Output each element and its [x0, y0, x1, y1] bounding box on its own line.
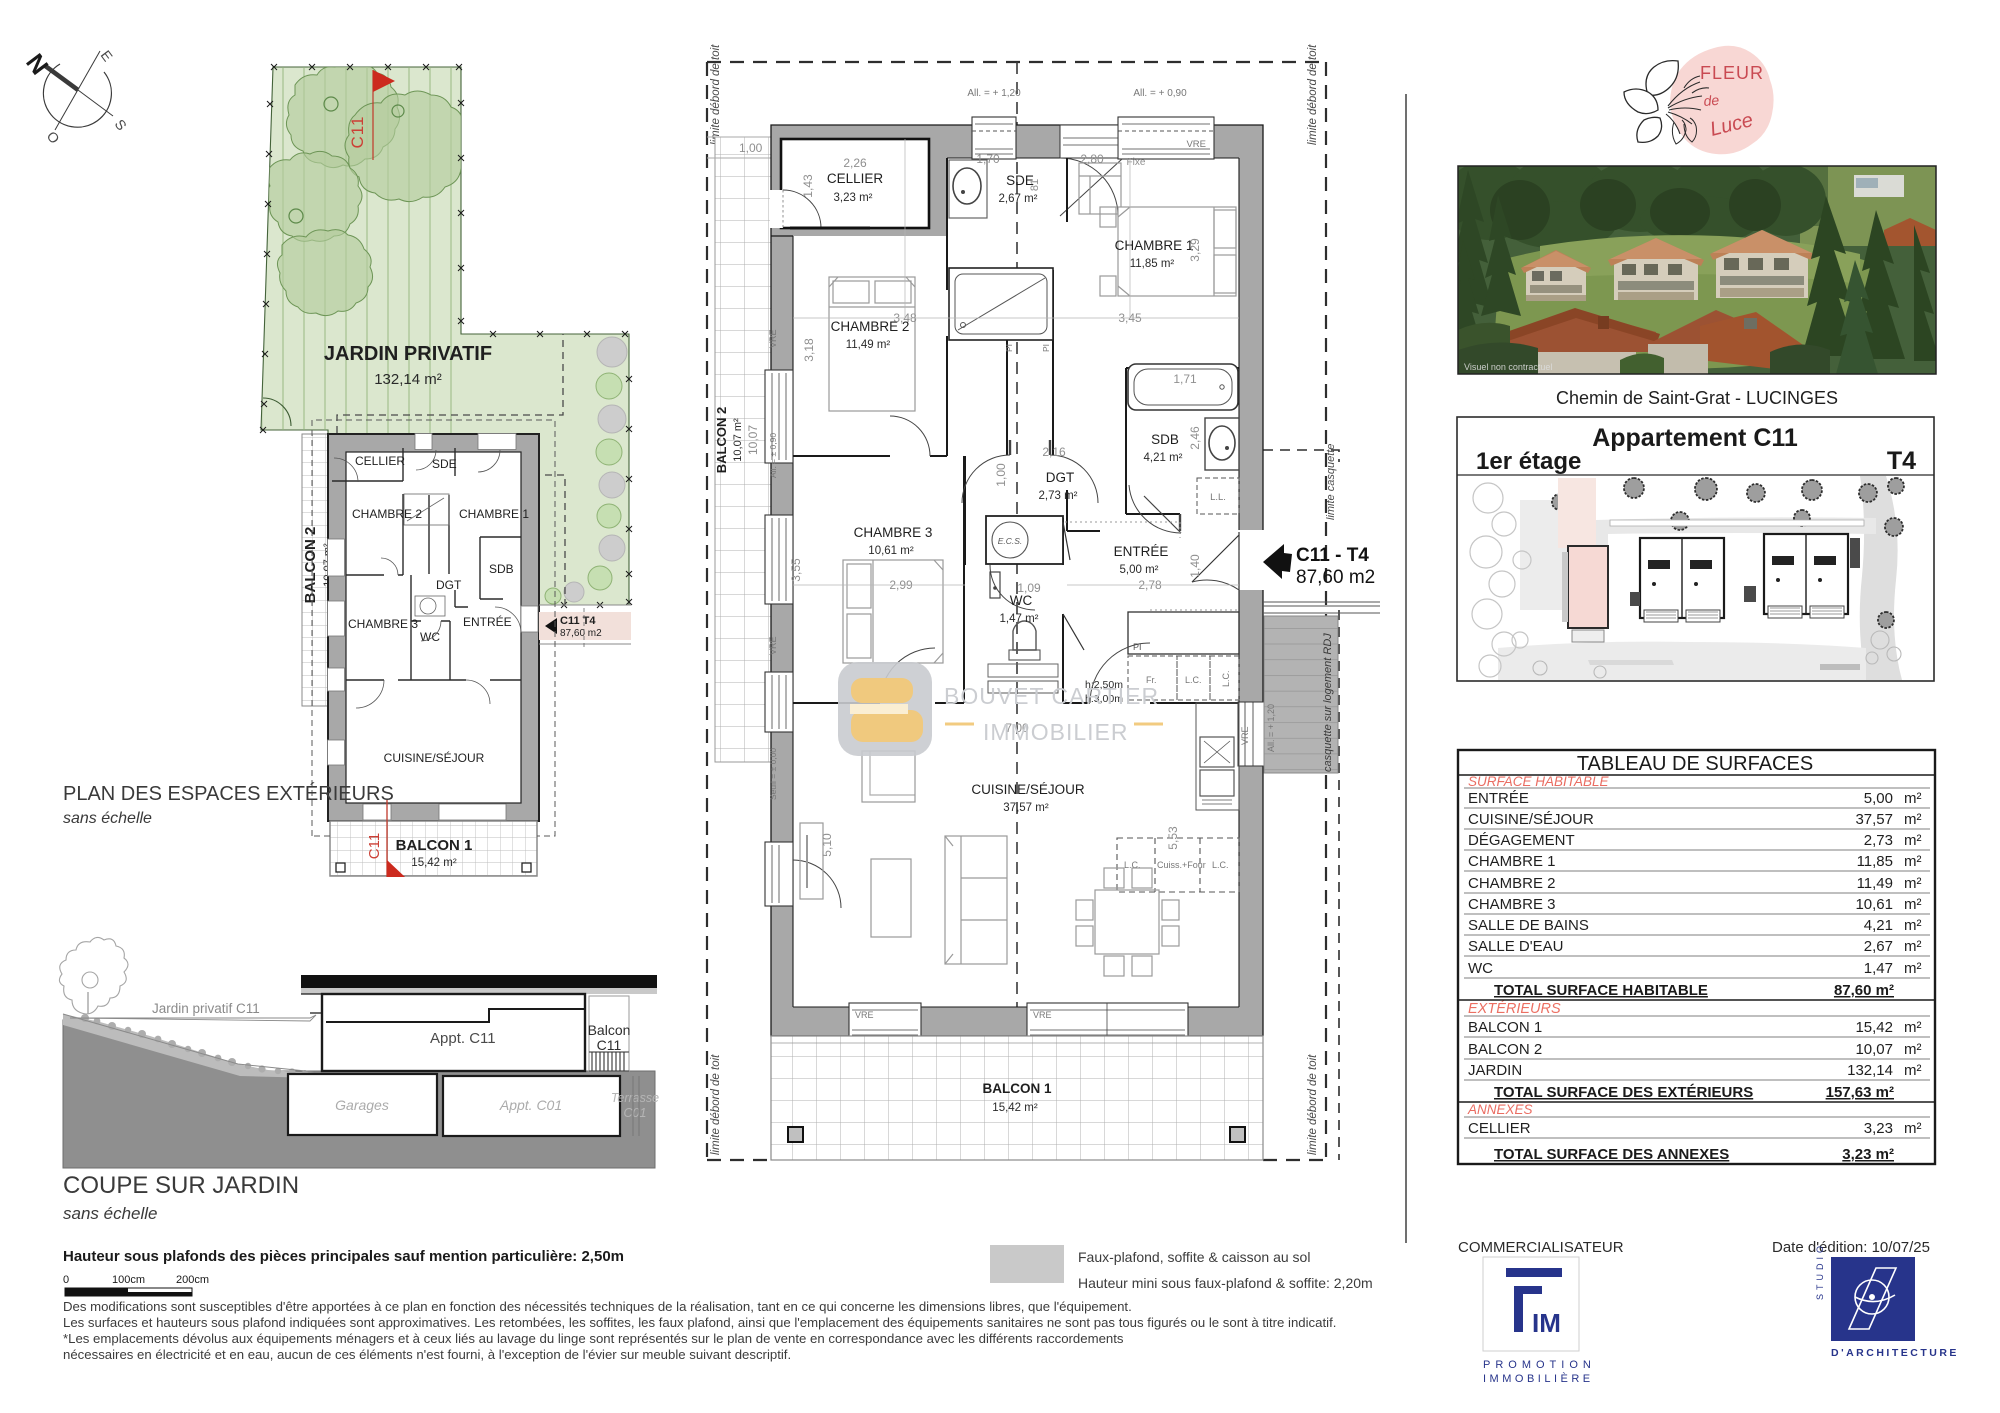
- svg-text:DÉGAGEMENT: DÉGAGEMENT: [1468, 832, 1575, 849]
- svg-text:CHAMBRE 1: CHAMBRE 1: [1115, 238, 1194, 253]
- svg-text:15,42: 15,42: [1855, 1019, 1893, 1036]
- svg-text:*Les emplacements dévolus aux: *Les emplacements dévolus aux équipement…: [63, 1331, 1124, 1346]
- svg-text:Des modifications sont suscept: Des modifications sont susceptibles d'êt…: [63, 1299, 1132, 1314]
- svg-text:ENTRÉE: ENTRÉE: [1114, 544, 1169, 559]
- svg-text:4,21 m²: 4,21 m²: [1144, 452, 1183, 464]
- svg-text:1,40: 1,40: [1188, 554, 1202, 578]
- svg-text:VRE: VRE: [1240, 726, 1250, 745]
- svg-text:m²: m²: [1904, 960, 1922, 977]
- svg-text:limite débord de toit: limite débord de toit: [1307, 44, 1319, 145]
- svg-text:CHAMBRE 3: CHAMBRE 3: [854, 525, 933, 540]
- svg-text:COMMERCIALISATEUR: COMMERCIALISATEUR: [1458, 1239, 1624, 1256]
- svg-text:SDB: SDB: [1151, 432, 1179, 447]
- svg-text:limite débord de toit: limite débord de toit: [710, 44, 722, 145]
- svg-text:PI: PI: [1041, 344, 1051, 352]
- svg-text:VRE: VRE: [768, 329, 778, 348]
- svg-text:m²: m²: [1904, 1019, 1922, 1036]
- svg-text:TABLEAU DE SURFACES: TABLEAU DE SURFACES: [1577, 753, 1813, 775]
- svg-text:100cm: 100cm: [112, 1274, 145, 1286]
- svg-text:VRE: VRE: [768, 636, 778, 655]
- svg-text:IMMOBILIÈRE: IMMOBILIÈRE: [1483, 1372, 1594, 1385]
- svg-text:10,07: 10,07: [1855, 1041, 1893, 1058]
- svg-text:All. = ± 0,90: All. = ± 0,90: [768, 433, 778, 478]
- svg-text:VRE: VRE: [1186, 139, 1206, 150]
- svg-text:m²: m²: [1904, 853, 1922, 870]
- svg-text:5,10: 5,10: [820, 833, 834, 857]
- svg-text:L.C.: L.C.: [1212, 860, 1229, 870]
- svg-text:5,00: 5,00: [1864, 790, 1893, 807]
- svg-text:3,29: 3,29: [1188, 238, 1202, 262]
- svg-text:11,49 m²: 11,49 m²: [846, 339, 891, 351]
- svg-text:Appt. C01: Appt. C01: [499, 1097, 562, 1113]
- svg-text:BALCON 2: BALCON 2: [302, 527, 319, 604]
- svg-text:11,85 m²: 11,85 m²: [1130, 258, 1175, 270]
- svg-text:0: 0: [63, 1274, 69, 1286]
- svg-text:SURFACE HABITABLE: SURFACE HABITABLE: [1468, 774, 1610, 789]
- svg-text:CELLIER: CELLIER: [827, 171, 884, 186]
- svg-text:1,43: 1,43: [801, 174, 815, 198]
- svg-text:Jardin privatif C11: Jardin privatif C11: [152, 1001, 260, 1016]
- svg-text:m²: m²: [1904, 811, 1922, 828]
- svg-text:Hauteur sous plafonds des pièc: Hauteur sous plafonds des pièces princip…: [63, 1248, 624, 1265]
- svg-text:200cm: 200cm: [176, 1274, 209, 1286]
- svg-text:81: 81: [1029, 179, 1041, 191]
- svg-text:TOTAL SURFACE HABITABLE: TOTAL SURFACE HABITABLE: [1494, 982, 1708, 999]
- svg-text:4,21: 4,21: [1864, 917, 1893, 934]
- svg-text:5,53: 5,53: [1166, 826, 1180, 850]
- svg-text:10,61: 10,61: [1855, 896, 1893, 913]
- svg-text:CUISINE/SÉJOUR: CUISINE/SÉJOUR: [1468, 811, 1594, 828]
- svg-text:Visuel non contractuel: Visuel non contractuel: [1464, 362, 1552, 372]
- svg-text:D'ARCHITECTURE: D'ARCHITECTURE: [1831, 1347, 1959, 1359]
- svg-text:All. = + 0,90: All. = + 0,90: [1133, 88, 1187, 99]
- svg-text:BOUVET CARTIER: BOUVET CARTIER: [944, 683, 1159, 709]
- svg-text:2,26: 2,26: [843, 156, 867, 170]
- svg-text:Chemin de Saint-Grat - LUCINGE: Chemin de Saint-Grat - LUCINGES: [1556, 388, 1838, 408]
- svg-text:C11: C11: [597, 1037, 622, 1053]
- svg-text:Les surfaces et hauteurs sous: Les surfaces et hauteurs sous plafond in…: [63, 1315, 1336, 1330]
- svg-text:Fixe: Fixe: [1127, 157, 1146, 168]
- svg-text:1er étage: 1er étage: [1476, 448, 1581, 475]
- svg-text:m²: m²: [1904, 1062, 1922, 1079]
- svg-text:VRE: VRE: [1033, 1010, 1052, 1020]
- svg-text:CHAMBRE 3: CHAMBRE 3: [1468, 896, 1556, 913]
- svg-text:3,18: 3,18: [802, 338, 816, 362]
- svg-text:CHAMBRE 1: CHAMBRE 1: [459, 507, 529, 521]
- svg-text:m²: m²: [1904, 832, 1922, 849]
- svg-text:87,60 m²: 87,60 m²: [1834, 982, 1894, 999]
- svg-text:ENTRÉE: ENTRÉE: [1468, 790, 1529, 807]
- svg-text:37,57 m²: 37,57 m²: [1003, 802, 1049, 814]
- svg-text:BALCON 2: BALCON 2: [1468, 1041, 1542, 1058]
- svg-text:132,14: 132,14: [1847, 1062, 1893, 1079]
- svg-text:limite débord de toit: limite débord de toit: [1307, 1054, 1319, 1155]
- svg-text:1,71: 1,71: [1173, 372, 1197, 386]
- svg-text:EXTÉRIEURS: EXTÉRIEURS: [1468, 1000, 1561, 1017]
- svg-text:VRE: VRE: [855, 1010, 874, 1020]
- svg-text:Appartement C11: Appartement C11: [1592, 424, 1798, 452]
- svg-text:10,07 m²: 10,07 m²: [732, 418, 744, 462]
- svg-text:PLAN DES ESPACES EXTÉRIEURS: PLAN DES ESPACES EXTÉRIEURS: [63, 782, 394, 805]
- svg-text:de: de: [1703, 92, 1720, 109]
- svg-text:sans échelle: sans échelle: [63, 810, 152, 827]
- svg-text:2,80: 2,80: [1080, 152, 1104, 166]
- svg-text:Garages: Garages: [335, 1097, 389, 1113]
- svg-text:C11 T4: C11 T4: [560, 615, 596, 627]
- svg-text:nécessaires en électricité et: nécessaires en électricité et en eau, au…: [63, 1347, 791, 1362]
- svg-text:CHAMBRE 2: CHAMBRE 2: [1468, 875, 1556, 892]
- svg-text:C11: C11: [366, 833, 383, 859]
- svg-text:15,42 m²: 15,42 m²: [992, 1102, 1038, 1114]
- svg-text:C11: C11: [348, 116, 367, 149]
- svg-text:3,55: 3,55: [789, 558, 803, 582]
- svg-text:BALCON 1: BALCON 1: [982, 1081, 1051, 1096]
- svg-text:m²: m²: [1904, 790, 1922, 807]
- svg-text:L.L.: L.L.: [1210, 492, 1226, 503]
- svg-text:2,16: 2,16: [1042, 445, 1066, 459]
- svg-text:3,23 m²: 3,23 m²: [1842, 1146, 1894, 1163]
- svg-text:m²: m²: [1904, 938, 1922, 955]
- svg-text:FLEUR: FLEUR: [1700, 63, 1764, 83]
- svg-text:All. = + 1,20: All. = + 1,20: [967, 88, 1021, 99]
- svg-text:BALCON 1: BALCON 1: [1468, 1019, 1542, 1036]
- svg-text:L.C.: L.C.: [1221, 670, 1231, 687]
- svg-text:BALCON 1: BALCON 1: [396, 837, 473, 854]
- svg-text:10,07: 10,07: [746, 425, 760, 455]
- svg-text:2,73 m²: 2,73 m²: [1039, 490, 1078, 502]
- svg-text:JARDIN PRIVATIF: JARDIN PRIVATIF: [324, 343, 492, 365]
- svg-text:C01: C01: [624, 1106, 647, 1120]
- svg-text:JARDIN: JARDIN: [1468, 1062, 1522, 1079]
- svg-text:SALLE D'EAU: SALLE D'EAU: [1468, 938, 1563, 955]
- svg-text:Seuil = ± 0,00: Seuil = ± 0,00: [768, 748, 778, 800]
- svg-text:Balcon: Balcon: [588, 1022, 631, 1038]
- svg-text:TOTAL SURFACE DES ANNEXES: TOTAL SURFACE DES ANNEXES: [1494, 1146, 1729, 1163]
- svg-text:1,70: 1,70: [976, 152, 1000, 166]
- svg-text:3,23 m²: 3,23 m²: [834, 192, 873, 204]
- svg-text:87,60 m2: 87,60 m2: [1296, 567, 1375, 588]
- svg-text:Hauteur mini sous faux-plafond: Hauteur mini sous faux-plafond & soffite…: [1078, 1275, 1373, 1291]
- svg-text:2,67 m²: 2,67 m²: [999, 193, 1038, 205]
- svg-text:Date d'édition: 10/07/25: Date d'édition: 10/07/25: [1772, 1239, 1930, 1256]
- svg-text:casquette sur logement RDJ: casquette sur logement RDJ: [1322, 633, 1334, 772]
- svg-text:37,57: 37,57: [1855, 811, 1893, 828]
- svg-text:CELLIER: CELLIER: [355, 454, 405, 468]
- svg-text:2,67: 2,67: [1864, 938, 1893, 955]
- svg-text:IMMOBILIER: IMMOBILIER: [983, 719, 1128, 745]
- svg-text:Appt. C11: Appt. C11: [430, 1030, 496, 1047]
- svg-text:PROMOTION: PROMOTION: [1483, 1359, 1596, 1371]
- svg-text:CELLIER: CELLIER: [1468, 1120, 1531, 1137]
- svg-text:15,42 m²: 15,42 m²: [411, 857, 457, 869]
- svg-text:DGT: DGT: [436, 578, 462, 592]
- svg-text:1,09: 1,09: [1017, 581, 1041, 595]
- svg-text:COUPE SUR JARDIN: COUPE SUR JARDIN: [63, 1172, 299, 1199]
- svg-text:All. = + 1,20: All. = + 1,20: [1266, 704, 1276, 752]
- svg-text:3,23: 3,23: [1864, 1120, 1893, 1137]
- svg-text:Cuiss.+Four: Cuiss.+Four: [1157, 860, 1206, 870]
- svg-text:1,47: 1,47: [1864, 960, 1893, 977]
- svg-text:SALLE DE BAINS: SALLE DE BAINS: [1468, 917, 1589, 934]
- svg-text:sans échelle: sans échelle: [63, 1204, 158, 1223]
- svg-text:132,14 m²: 132,14 m²: [374, 371, 442, 388]
- svg-text:ENTRÉE: ENTRÉE: [463, 614, 512, 629]
- svg-text:m²: m²: [1904, 875, 1922, 892]
- svg-text:1,00: 1,00: [994, 463, 1008, 487]
- svg-text:SDE: SDE: [432, 457, 457, 471]
- svg-text:10,61 m²: 10,61 m²: [868, 545, 914, 557]
- svg-text:PI: PI: [1004, 344, 1014, 352]
- svg-text:Faux-plafond, soffite & caisso: Faux-plafond, soffite & caisson au sol: [1078, 1249, 1310, 1265]
- svg-text:CUISINE/SÉJOUR: CUISINE/SÉJOUR: [384, 750, 485, 765]
- svg-text:Terrasse: Terrasse: [611, 1091, 659, 1105]
- svg-text:WC: WC: [1010, 593, 1033, 608]
- svg-text:CHAMBRE 1: CHAMBRE 1: [1468, 853, 1556, 870]
- svg-text:CHAMBRE 3: CHAMBRE 3: [348, 617, 418, 631]
- svg-text:11,85: 11,85: [1857, 853, 1893, 870]
- svg-text:ANNEXES: ANNEXES: [1467, 1102, 1533, 1117]
- svg-text:DGT: DGT: [1046, 470, 1075, 485]
- svg-text:T4: T4: [1887, 447, 1916, 475]
- svg-text:limite casquette: limite casquette: [1325, 444, 1337, 520]
- svg-text:1,00: 1,00: [739, 141, 763, 155]
- svg-text:m²: m²: [1904, 1120, 1922, 1137]
- svg-text:C11 - T4: C11 - T4: [1296, 545, 1369, 566]
- svg-text:11,49: 11,49: [1857, 875, 1893, 892]
- svg-text:STUDIO: STUDIO: [1815, 1242, 1825, 1300]
- svg-text:limite débord de toit: limite débord de toit: [710, 1054, 722, 1155]
- svg-text:CHAMBRE 2: CHAMBRE 2: [352, 507, 422, 521]
- svg-text:2,73: 2,73: [1864, 832, 1893, 849]
- svg-text:87,60 m2: 87,60 m2: [560, 628, 602, 639]
- svg-text:2,46: 2,46: [1188, 426, 1202, 450]
- svg-text:m²: m²: [1904, 896, 1922, 913]
- svg-text:E.C.S.: E.C.S.: [998, 536, 1023, 546]
- svg-text:TOTAL SURFACE DES EXTÉRIEURS: TOTAL SURFACE DES EXTÉRIEURS: [1494, 1084, 1753, 1101]
- svg-text:1,47 m²: 1,47 m²: [1000, 613, 1039, 625]
- svg-text:157,63 m²: 157,63 m²: [1826, 1084, 1894, 1101]
- svg-text:WC: WC: [1468, 960, 1493, 977]
- svg-text:m²: m²: [1904, 917, 1922, 934]
- svg-text:BALCON 2: BALCON 2: [714, 407, 729, 473]
- svg-text:SDB: SDB: [489, 562, 514, 576]
- svg-text:m²: m²: [1904, 1041, 1922, 1058]
- svg-text:L.C.: L.C.: [1185, 675, 1202, 685]
- svg-text:CUISINE/SÉJOUR: CUISINE/SÉJOUR: [971, 782, 1085, 797]
- svg-text:IM: IM: [1532, 1308, 1561, 1338]
- svg-text:5,00 m²: 5,00 m²: [1120, 564, 1159, 576]
